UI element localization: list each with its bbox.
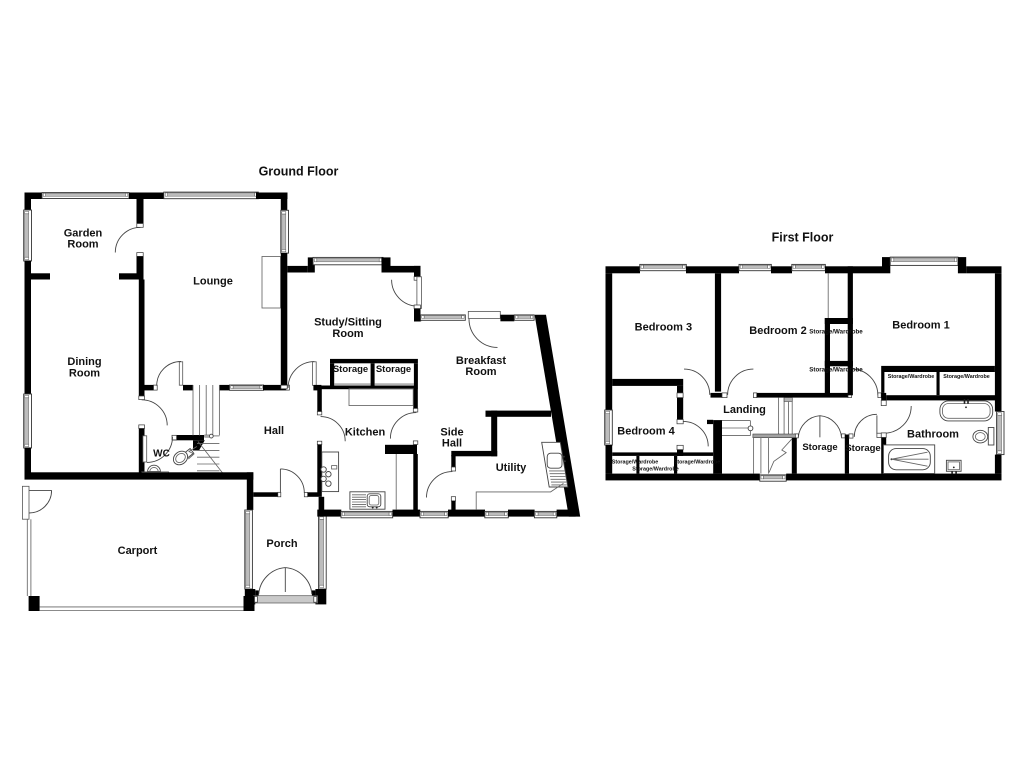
svg-text:Storage/Wardrobe: Storage/Wardrobe (612, 460, 659, 466)
svg-text:Room: Room (69, 367, 100, 379)
svg-text:Utility: Utility (496, 462, 527, 474)
svg-text:Storage/Wardrobe: Storage/Wardrobe (888, 374, 935, 380)
svg-text:Landing: Landing (723, 404, 766, 416)
svg-text:Room: Room (67, 239, 98, 251)
svg-text:Storage: Storage (845, 443, 880, 454)
svg-text:Side: Side (440, 426, 463, 438)
svg-text:First Floor: First Floor (772, 231, 834, 245)
svg-text:Storage/Wardrobe: Storage/Wardrobe (674, 460, 721, 466)
svg-text:Hall: Hall (264, 425, 284, 437)
svg-text:Bedroom 2: Bedroom 2 (749, 325, 806, 337)
svg-text:Bedroom 4: Bedroom 4 (617, 426, 675, 438)
svg-text:Lounge: Lounge (193, 276, 233, 288)
svg-text:Porch: Porch (266, 538, 297, 550)
svg-text:Storage/Wardrobe: Storage/Wardrobe (809, 367, 863, 374)
svg-text:Kitchen: Kitchen (345, 427, 386, 439)
svg-text:Dining: Dining (67, 356, 101, 368)
svg-text:Room: Room (465, 366, 496, 378)
svg-text:Garden: Garden (64, 227, 103, 239)
svg-text:Storage: Storage (802, 442, 837, 453)
svg-text:Room: Room (332, 328, 363, 340)
svg-text:Storage: Storage (333, 364, 368, 375)
svg-text:Storage/Wardrobe: Storage/Wardrobe (809, 328, 863, 335)
svg-text:Bedroom 1: Bedroom 1 (892, 320, 949, 332)
svg-text:WC: WC (153, 449, 170, 460)
svg-text:Storage/Wardrobe: Storage/Wardrobe (632, 467, 679, 473)
svg-text:Hall: Hall (442, 438, 462, 450)
svg-text:Storage: Storage (376, 364, 411, 375)
svg-text:Bedroom 3: Bedroom 3 (635, 322, 692, 334)
svg-text:Study/Sitting: Study/Sitting (314, 317, 382, 329)
svg-text:Bathroom: Bathroom (907, 429, 959, 441)
svg-text:Storage/Wardrobe: Storage/Wardrobe (943, 374, 990, 380)
svg-text:Ground Floor: Ground Floor (259, 165, 339, 179)
svg-text:Carport: Carport (118, 545, 158, 557)
